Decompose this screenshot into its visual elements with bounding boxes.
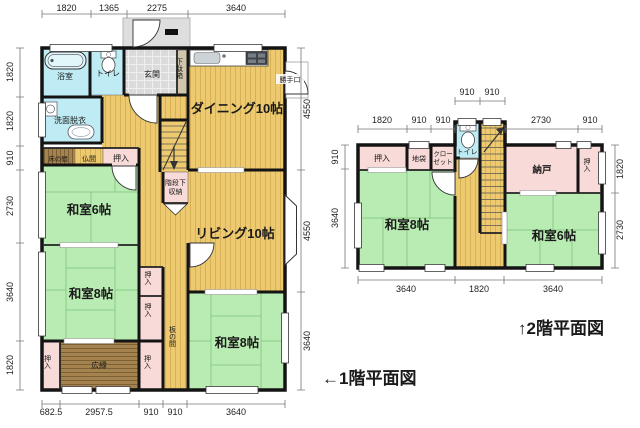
itanoma-label: 板の間	[169, 325, 177, 348]
f1-dim-top-2: 2275	[147, 3, 167, 13]
entrance-label: 玄関	[144, 69, 160, 79]
f1-dim-left-2: 910	[5, 150, 15, 165]
altar-room-label: 仏間	[82, 155, 96, 163]
closet-col-label-2: 押入	[144, 302, 152, 317]
f1-dim-bottom-3: 910	[167, 407, 182, 417]
f2-dim-top-1: 910	[411, 115, 426, 125]
washer-icon	[44, 102, 57, 116]
washitsu8-right-label: 和室8帖	[214, 335, 260, 350]
porch-pillar	[165, 29, 178, 35]
f1-dim-right-2: 3640	[302, 331, 312, 351]
faucet-icon	[222, 54, 226, 58]
f2-washitsu8-label: 和室8帖	[384, 217, 430, 232]
floor1-plan: 浴室 トイレ 玄関 下駄箱 ダイニング10帖 勝手口 洗面脱衣 床の間 仏間 押…	[5, 3, 312, 417]
back-door-label: 勝手口	[280, 75, 301, 84]
f1-dim-left-0: 1820	[5, 62, 15, 82]
f1-dim-bottom-4: 3640	[226, 407, 246, 417]
bay-window	[285, 195, 297, 265]
f2-dim-bottom-2: 3640	[543, 284, 563, 294]
f1-dim-right-0: 4550	[302, 99, 312, 119]
alcove-label: 床の間	[48, 154, 68, 163]
under-stairs-label-1: 階段下	[165, 178, 186, 187]
f2-dim-top-4: 910	[582, 115, 597, 125]
f1-dim-left-5: 1820	[5, 355, 15, 375]
under-stairs-label-2: 収納	[169, 187, 183, 196]
f1-dim-top-1: 1365	[99, 3, 119, 13]
washitsu8-left-label: 和室8帖	[68, 286, 114, 301]
floorplan-canvas: 浴室 トイレ 玄関 下駄箱 ダイニング10帖 勝手口 洗面脱衣 床の間 仏間 押…	[0, 0, 640, 428]
f1-dim-right-1: 4550	[302, 221, 312, 241]
floorplan-page: 浴室 トイレ 玄関 下駄箱 ダイニング10帖 勝手口 洗面脱衣 床の間 仏間 押…	[0, 0, 640, 428]
toilet-label: トイレ	[96, 69, 120, 78]
closet-col-label-1: 押入	[144, 270, 152, 285]
bath-label: 浴室	[57, 71, 73, 81]
f2-storage-label: 納戸	[532, 164, 552, 176]
f2-dim-right-0: 1820	[615, 159, 625, 179]
f2-dim-right-1: 2730	[615, 220, 625, 240]
f1-dim-left-1: 1820	[5, 111, 15, 131]
toilet-tank-icon	[101, 51, 116, 58]
f2-dim-bottom-1: 1820	[469, 284, 489, 294]
closet-row-label: 押入	[113, 153, 129, 163]
kitchen-sink-icon	[194, 53, 220, 64]
closet-bl-label: 押入	[44, 354, 52, 369]
f2-toilet-bowl-icon	[462, 132, 475, 148]
floor1-caption: ←1階平面図	[322, 369, 416, 388]
living-label: リビング10帖	[195, 226, 274, 241]
closet-br-label: 押入	[144, 354, 152, 369]
f1-dim-left-4: 3640	[5, 282, 15, 302]
f1-dim-top-3: 3640	[226, 3, 246, 13]
f2-dim-left-1: 3640	[330, 208, 340, 228]
f2-dim-topu-0: 910	[459, 87, 474, 97]
f2-washitsu6-label: 和室6帖	[531, 228, 577, 243]
f2-dim-top-2: 910	[435, 115, 450, 125]
f1-dim-bottom-0: 682.5	[40, 407, 63, 417]
under-stairs-storage	[163, 172, 188, 203]
f1-dim-top-0: 1820	[56, 3, 76, 13]
shoe-cabinet-label: 下駄箱	[176, 58, 184, 80]
f1-dim-bottom-1: 2957.5	[85, 407, 113, 417]
washitsu6-label: 和室6帖	[66, 202, 112, 217]
f1-dim-left-3: 2730	[5, 196, 15, 216]
f2-dim-left-0: 910	[330, 149, 340, 164]
f1-dim-bottom-2: 910	[143, 407, 158, 417]
floor2-fixtures	[460, 124, 476, 148]
dining-label: ダイニング10帖	[191, 101, 283, 116]
floor2-plan: 押入 地袋 クロー ゼット トイレ 納戸 押入 和室8帖 和室6帖 910 91…	[330, 87, 625, 294]
f2-dim-topu-1: 910	[484, 87, 499, 97]
floor2-caption: ↑2階平面図	[518, 319, 604, 338]
bath-drain-icon	[50, 59, 53, 62]
corridor	[139, 165, 163, 267]
f2-dim-bottom-0: 3640	[396, 284, 416, 294]
f2-wardrobe-label-2: ゼット	[433, 157, 453, 166]
f2-closet-right-label: 押入	[583, 157, 591, 172]
f2-dim-top-3: 2730	[531, 115, 551, 125]
f2-dim-top-0: 1820	[372, 115, 392, 125]
f2-wardrobe-label-1: クロー	[433, 150, 453, 158]
veranda-label: 広縁	[91, 360, 107, 370]
f2-jibukuro-label: 地袋	[412, 154, 426, 163]
f2-closet-label: 押入	[374, 153, 390, 163]
f2-toilet-label: トイレ	[457, 149, 478, 156]
washroom-label: 洗面脱衣	[54, 115, 86, 125]
